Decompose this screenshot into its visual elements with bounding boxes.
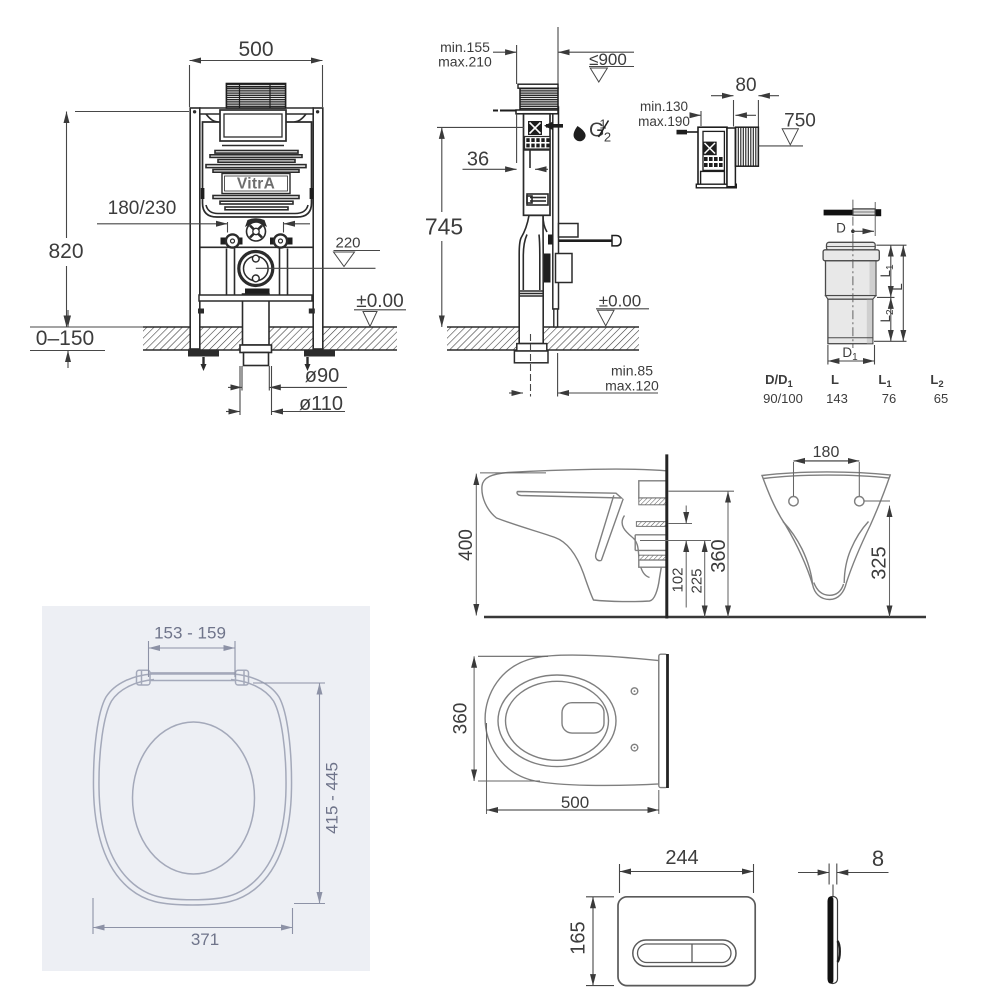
- svg-text:65: 65: [934, 391, 948, 406]
- svg-text:0–150: 0–150: [36, 327, 94, 350]
- svg-text:L: L: [890, 283, 905, 291]
- svg-text:±0.00: ±0.00: [356, 291, 403, 312]
- svg-text:143: 143: [826, 391, 848, 406]
- svg-text:244: 244: [665, 847, 698, 869]
- svg-text:L: L: [831, 372, 839, 387]
- svg-text:180/230: 180/230: [108, 198, 177, 219]
- svg-text:102: 102: [670, 567, 687, 592]
- svg-text:360: 360: [708, 539, 730, 572]
- svg-text:36: 36: [467, 149, 489, 171]
- svg-text:max.120: max.120: [605, 378, 659, 394]
- svg-text:820: 820: [48, 240, 83, 263]
- svg-text:225: 225: [689, 568, 706, 593]
- svg-text:max.210: max.210: [438, 54, 492, 70]
- svg-text:220: 220: [335, 235, 360, 252]
- svg-text:180: 180: [813, 444, 840, 461]
- svg-text:8: 8: [872, 846, 884, 871]
- svg-text:360: 360: [451, 703, 472, 735]
- svg-text:min.130: min.130: [640, 99, 688, 114]
- svg-text:D: D: [836, 221, 846, 236]
- svg-text:165: 165: [568, 921, 590, 954]
- svg-text:415 - 445: 415 - 445: [323, 762, 342, 834]
- svg-text:76: 76: [882, 391, 896, 406]
- svg-text:500: 500: [561, 793, 589, 812]
- svg-text:2: 2: [604, 130, 611, 145]
- svg-text:371: 371: [191, 930, 219, 949]
- svg-text:500: 500: [238, 38, 273, 61]
- svg-text:VitrA: VitrA: [237, 176, 275, 193]
- svg-text:min.85: min.85: [611, 363, 653, 379]
- svg-text:153 - 159: 153 - 159: [154, 624, 226, 643]
- svg-text:745: 745: [425, 214, 463, 240]
- svg-text:±0.00: ±0.00: [599, 292, 641, 311]
- svg-text:max.190: max.190: [638, 114, 690, 129]
- svg-text:325: 325: [869, 546, 891, 579]
- svg-text:80: 80: [735, 75, 756, 96]
- svg-text:90/100: 90/100: [763, 391, 803, 406]
- svg-text:ø90: ø90: [305, 365, 339, 387]
- svg-text:400: 400: [456, 529, 477, 561]
